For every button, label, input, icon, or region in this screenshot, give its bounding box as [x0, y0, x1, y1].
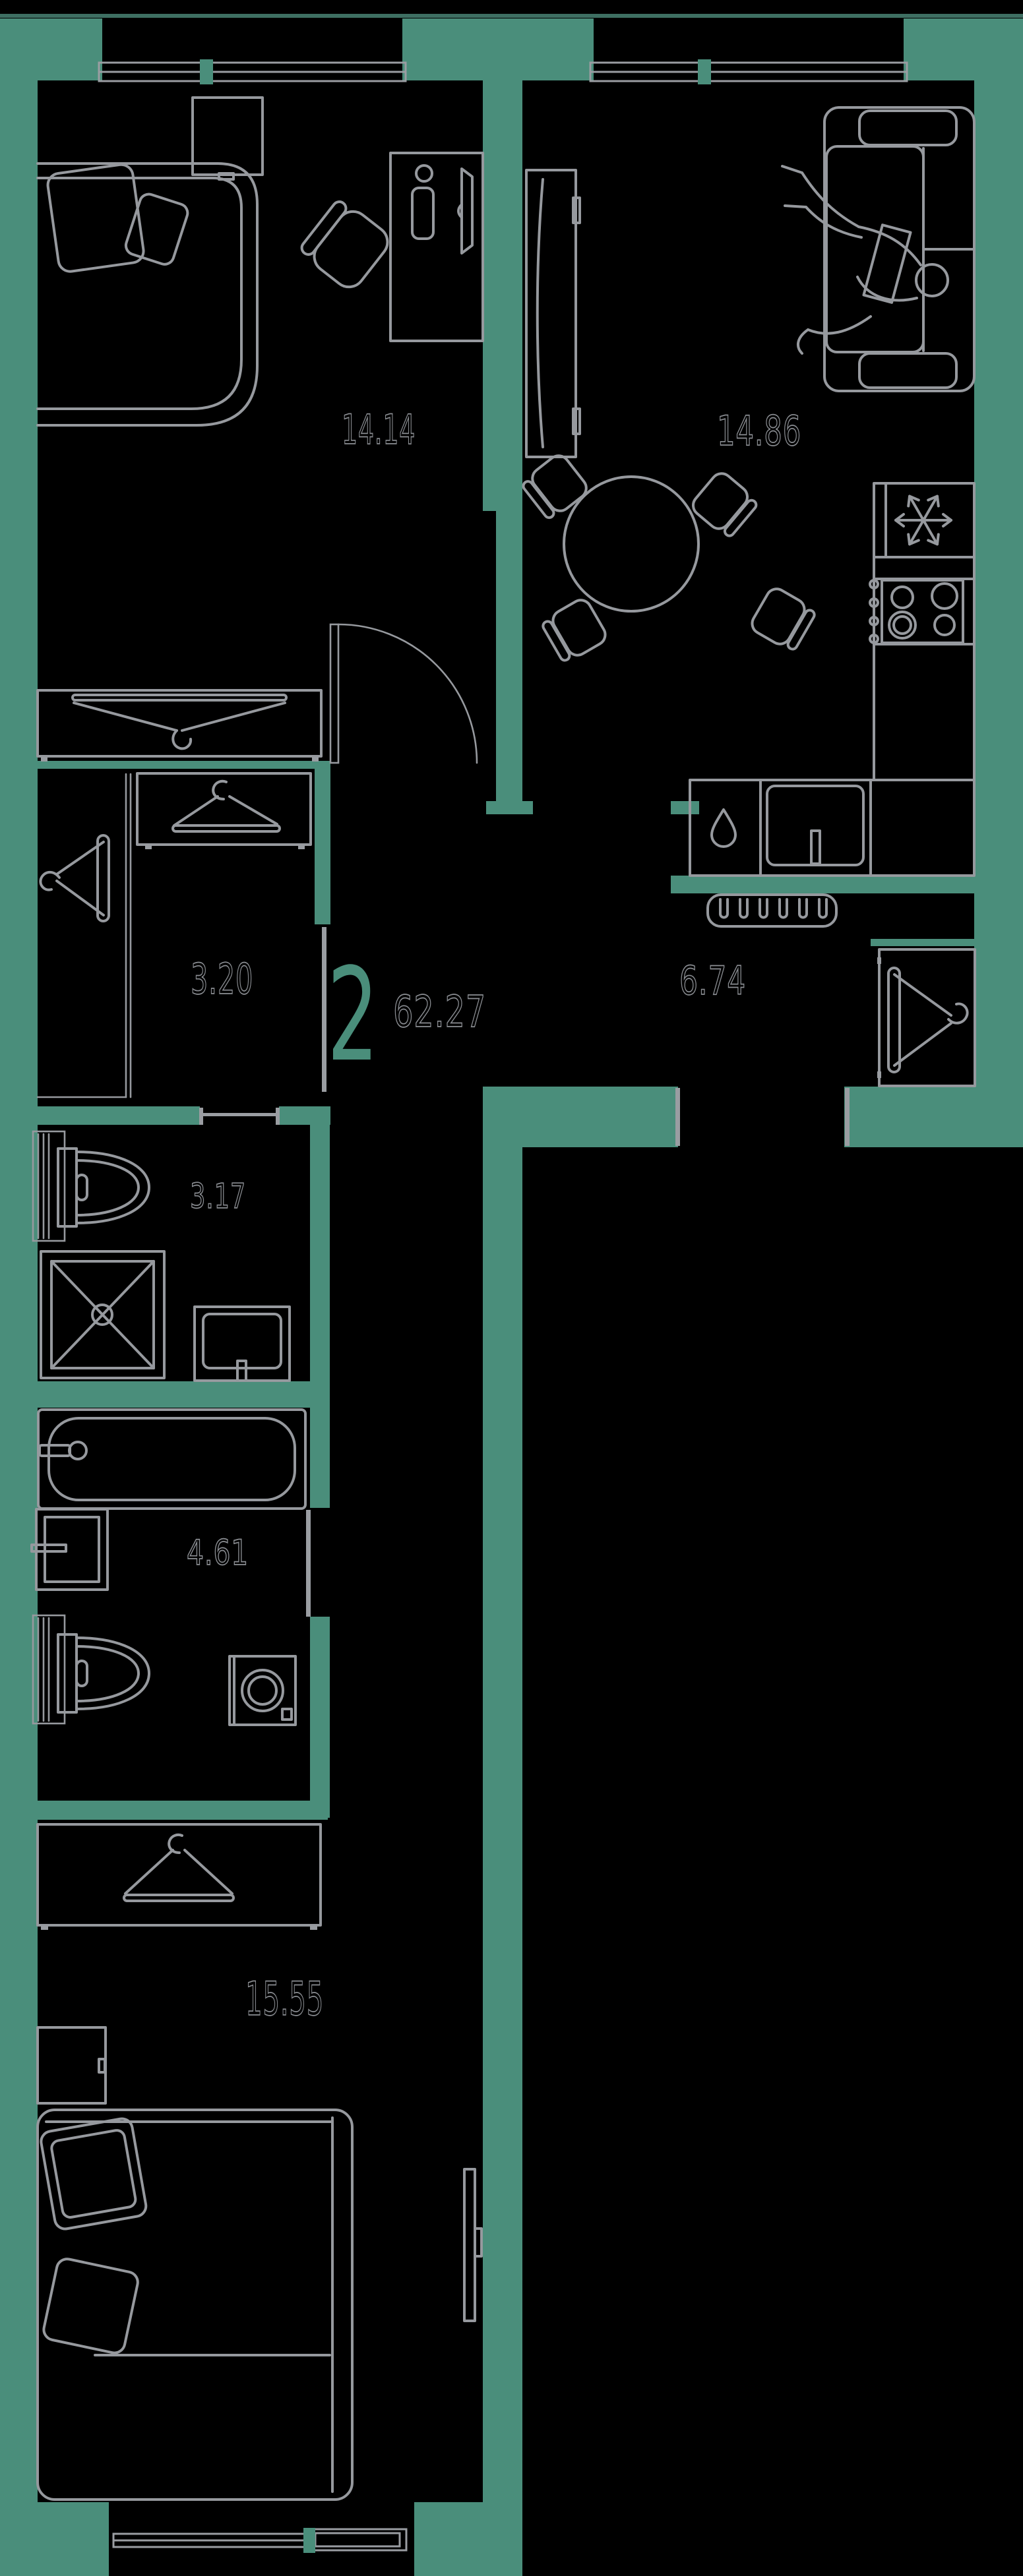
rooms-count: 2 — [327, 940, 379, 1090]
wall-bedroom1-bottom — [38, 761, 330, 769]
wall-bath-right-lower — [310, 1617, 330, 1818]
wall-mid-upper — [483, 80, 522, 511]
window-icon-living — [590, 59, 907, 84]
wall-bottom-left — [0, 2502, 109, 2576]
wall-bedroom2-top — [38, 1801, 328, 1820]
area-label-bathroom-small: 3.17 — [190, 1177, 246, 1216]
area-label-bedroom-bottom: 15.55 — [245, 1972, 324, 2026]
wall-mid-lower — [483, 1087, 522, 2502]
wall-closet-right — [315, 769, 330, 924]
door-leaf-closet — [322, 927, 326, 1092]
total-area: 62.27 — [393, 986, 486, 1037]
floor-plan-svg: 14.14 14.86 3.20 2 62.27 6.74 3.17 4.61 … — [0, 0, 1023, 2576]
wall-living-door-right — [671, 801, 699, 814]
wall-closet-bath-right — [279, 1106, 330, 1125]
area-label-hallway: 6.74 — [679, 958, 746, 1004]
wall-top-right — [904, 18, 1023, 80]
wall-bath-right-upper — [310, 1125, 330, 1508]
wall-kitchen-hall — [671, 876, 974, 893]
wall-entry-right — [844, 1087, 1023, 1147]
wall-mid-narrow — [496, 511, 522, 801]
wall-closet-bath-left — [38, 1106, 200, 1125]
wall-right-outer — [974, 80, 1023, 1087]
floor-plan-page: 14.14 14.86 3.20 2 62.27 6.74 3.17 4.61 … — [0, 0, 1023, 2576]
window-icon-bedroom1 — [99, 59, 406, 84]
wall-bath-divider — [38, 1381, 330, 1408]
door-leaf-bathroom-large — [306, 1510, 311, 1617]
wall-left-outer — [0, 18, 38, 2576]
area-label-living: 14.86 — [717, 407, 801, 455]
wall-mid-foot — [486, 801, 533, 814]
wall-top-middle — [402, 18, 594, 80]
wall-niche-shelf — [871, 939, 974, 946]
area-label-bedroom-top: 14.14 — [342, 405, 416, 454]
area-label-bathroom-large: 4.61 — [187, 1533, 249, 1573]
building-edge-line — [0, 14, 1023, 18]
wall-bottom-right — [414, 2502, 522, 2576]
area-label-closet: 3.20 — [191, 955, 253, 1004]
